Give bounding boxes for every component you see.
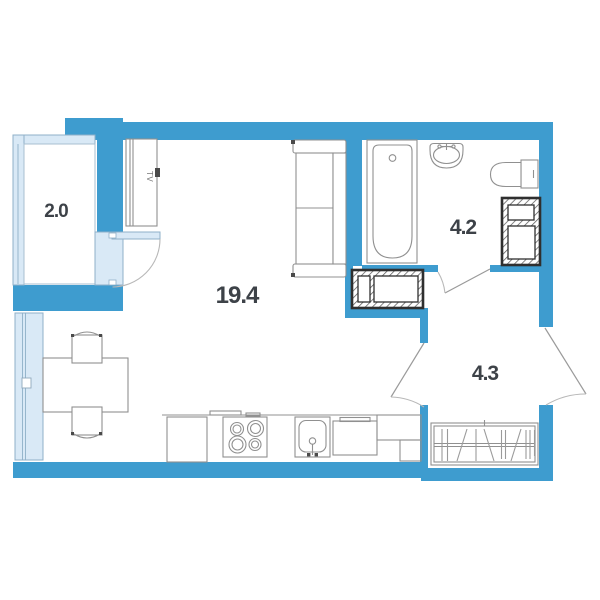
toilet-bowl — [491, 163, 522, 187]
kitchen-counter — [162, 411, 421, 462]
balcony-glazing-top — [13, 135, 95, 144]
kitchen-sink — [295, 417, 330, 457]
balcony-glazing-left — [13, 135, 24, 285]
living-room-area-label: 19.4 — [216, 282, 260, 309]
room-door-leaf — [391, 343, 424, 397]
bathroom-door — [438, 269, 490, 293]
tv-cabinet: TV — [126, 139, 160, 226]
ventilation-shaft-hall — [352, 270, 423, 308]
chair-top — [71, 332, 102, 363]
toilet — [491, 160, 539, 188]
entrance-door-leaf — [545, 328, 586, 394]
sofa — [291, 140, 346, 277]
door-hinge-mark — [109, 280, 116, 285]
kitchen-cabinet — [333, 418, 377, 456]
bathtub — [367, 140, 417, 263]
fridge — [167, 417, 207, 462]
sofa-backrest — [333, 153, 346, 264]
entrance-door-swing-arc — [546, 394, 586, 405]
tv-set — [155, 168, 160, 177]
wall-bathroom-partition — [345, 140, 362, 266]
room-door-swing-arc — [391, 397, 424, 407]
chair-bottom — [71, 407, 102, 438]
entrance-door — [545, 328, 586, 405]
wardrobe — [431, 420, 538, 465]
toilet-tank — [521, 160, 538, 188]
stove-hood — [210, 411, 241, 415]
wall-shaft-bottom — [345, 308, 428, 318]
counter-step — [400, 440, 421, 461]
balcony-area-label: 2.0 — [44, 201, 68, 222]
stove — [210, 411, 267, 457]
wall-balcony-bottom — [13, 285, 123, 311]
ventilation-shaft-bathroom — [502, 198, 540, 265]
balcony-door-leaf — [112, 232, 160, 239]
balcony-door-frame — [95, 232, 123, 285]
wall-hall-partition-upper — [420, 318, 428, 343]
tv-label: TV — [145, 171, 154, 182]
floor-plan: TV — [0, 0, 600, 600]
bathroom-area-label: 4.2 — [450, 216, 477, 239]
wall-bottom-hallway — [421, 468, 553, 481]
bathroom-door-swing-arc — [438, 272, 445, 293]
wall-balcony-right — [97, 140, 123, 233]
door-hinge-mark — [109, 233, 116, 238]
dining-table — [43, 358, 128, 412]
wall-top — [65, 122, 553, 140]
wall-bottom-main — [13, 462, 428, 478]
room-door — [391, 343, 424, 407]
window-handle — [22, 378, 31, 388]
hallway-area-label: 4.3 — [472, 362, 499, 385]
washbasin — [430, 143, 463, 168]
counter-corner — [377, 415, 421, 440]
floor-plan-drawing: TV — [0, 0, 600, 600]
balcony-door — [95, 232, 160, 287]
bathroom-door-leaf — [445, 269, 490, 293]
